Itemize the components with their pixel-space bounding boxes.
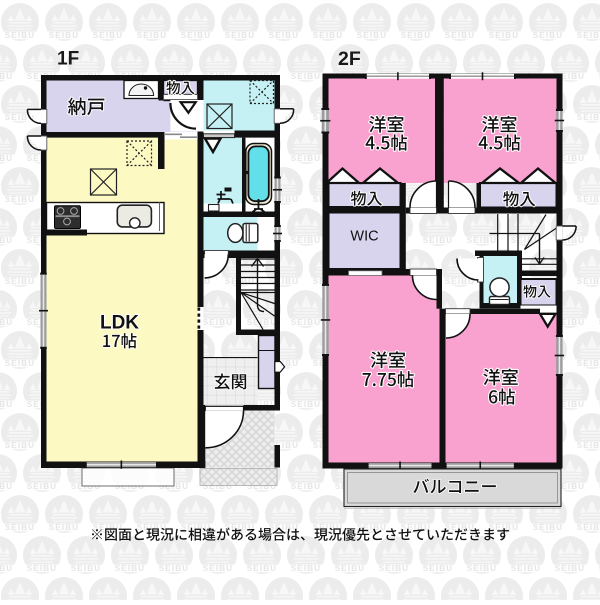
svg-text:WIC: WIC [350, 229, 378, 245]
svg-text:LDK: LDK [100, 312, 139, 333]
svg-text:2F: 2F [338, 48, 361, 70]
svg-text:1F: 1F [57, 49, 79, 70]
